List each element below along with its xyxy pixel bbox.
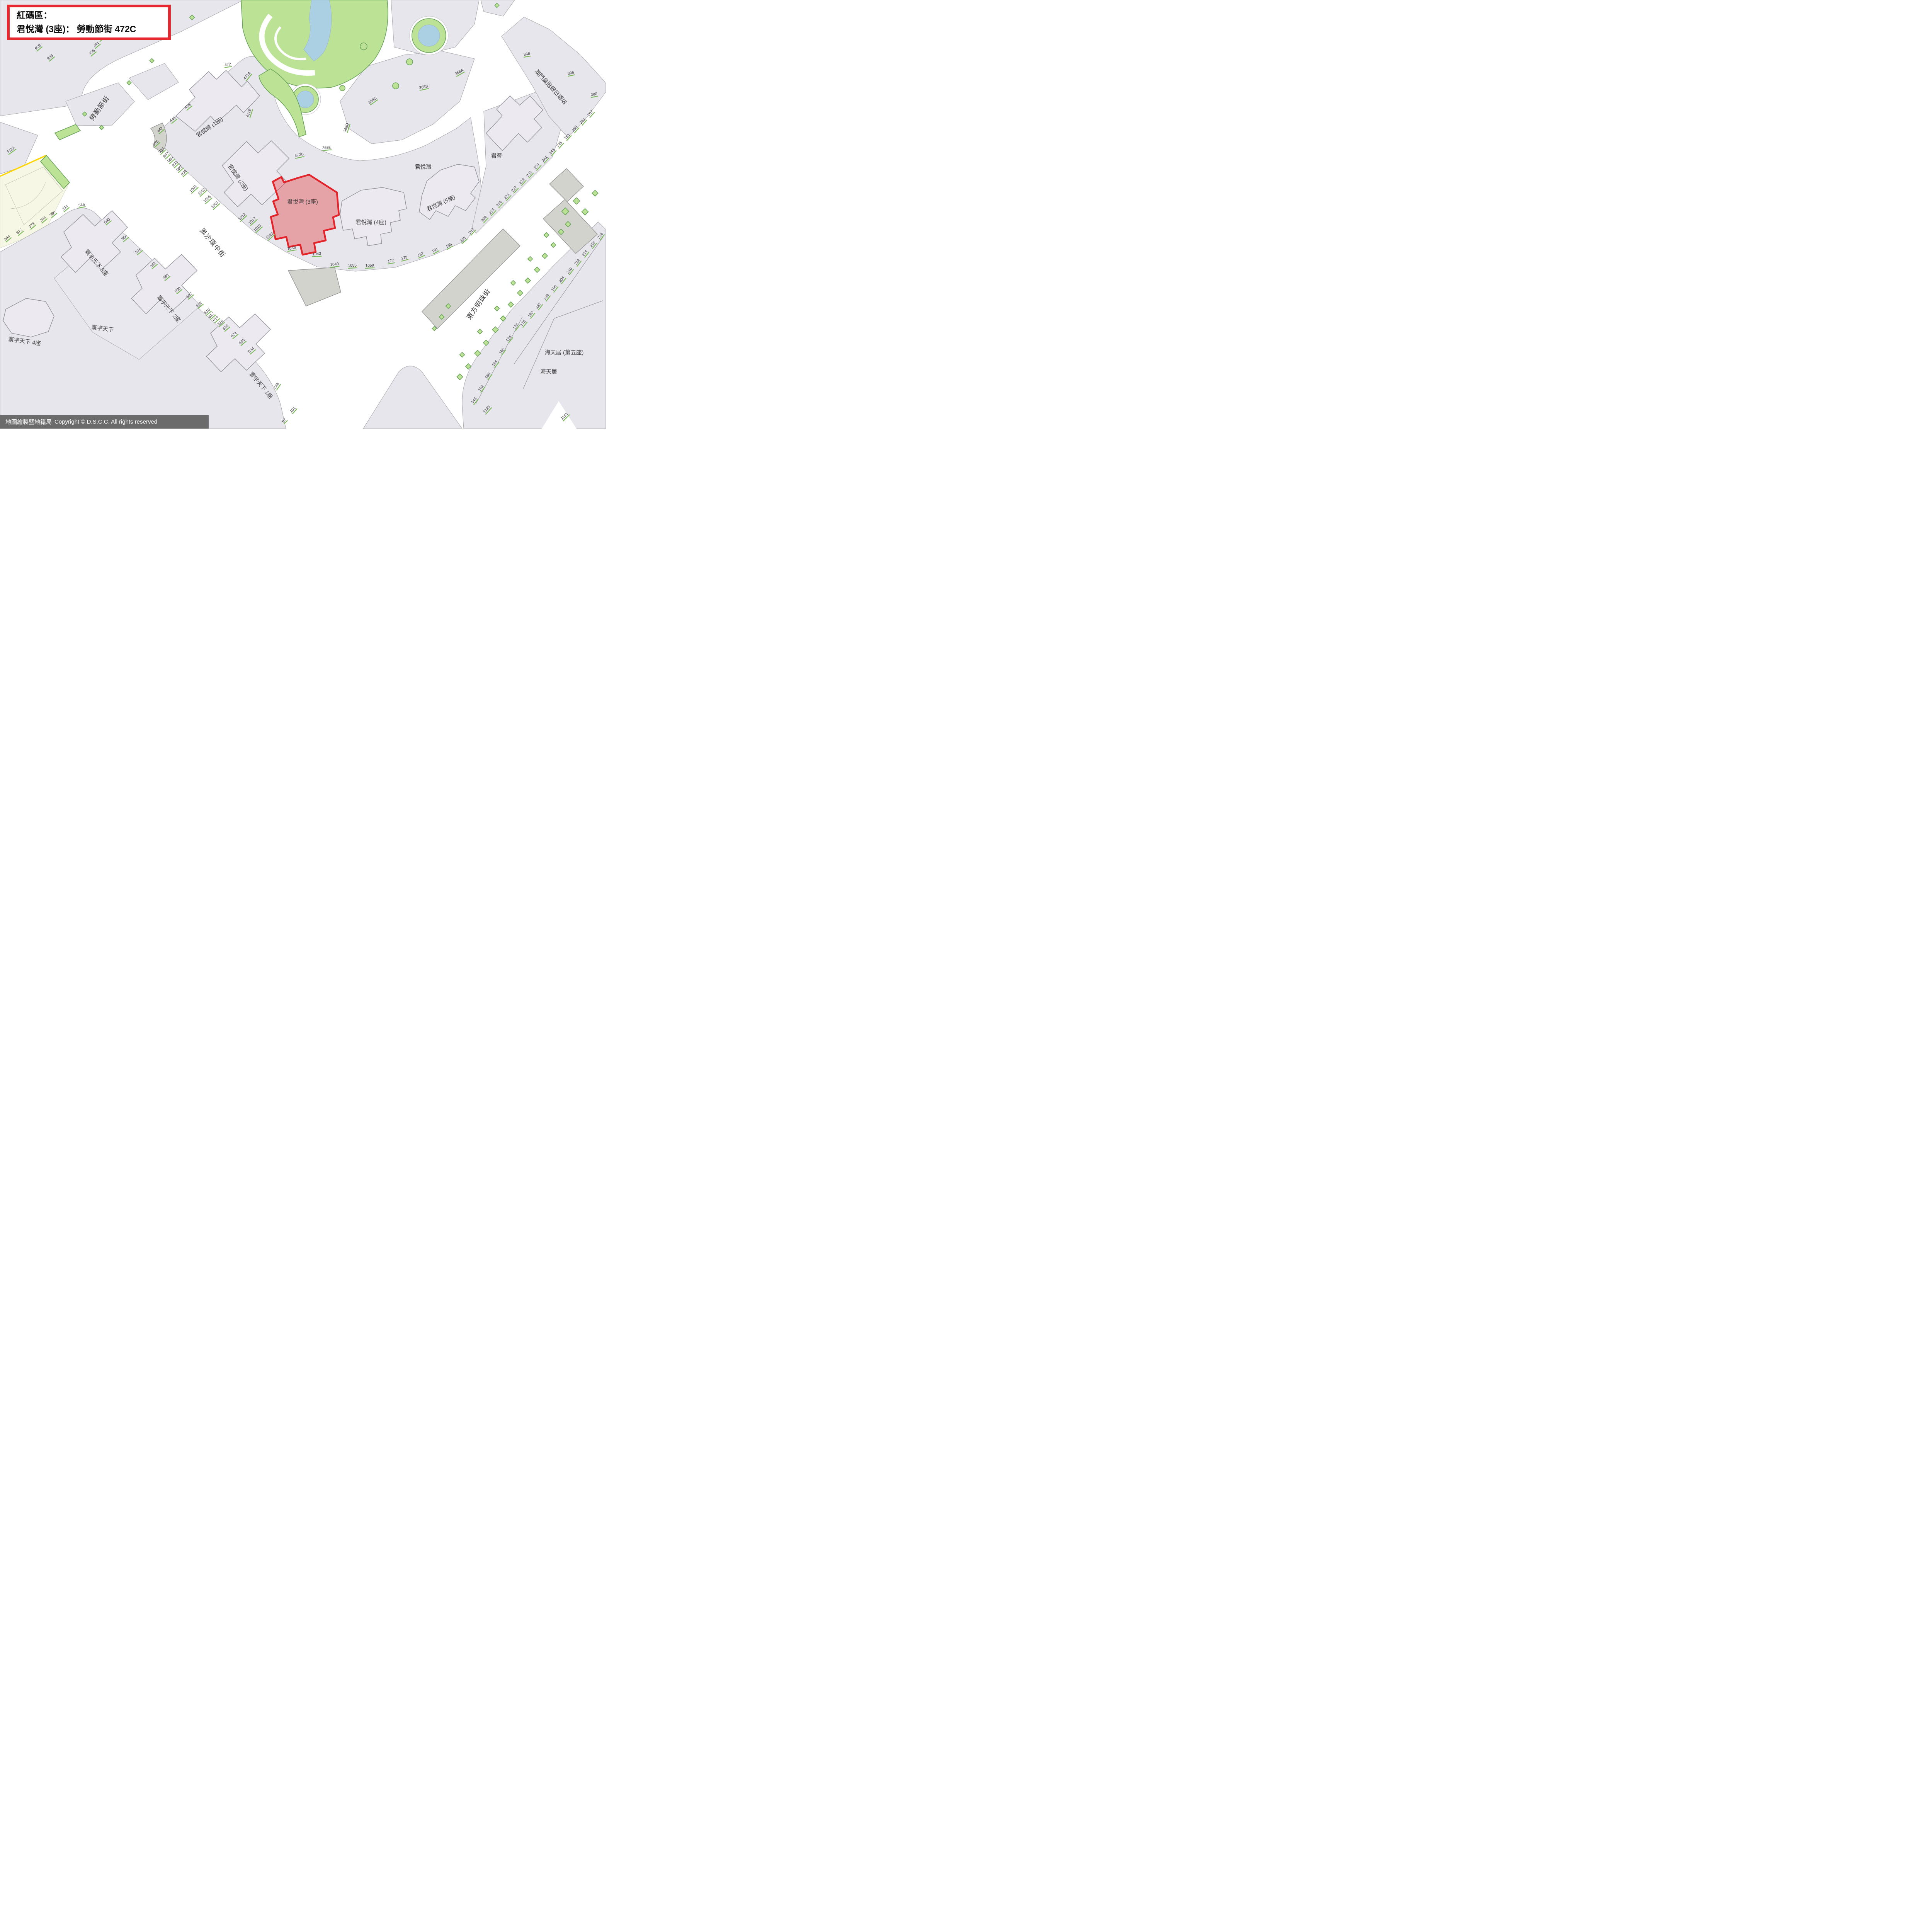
tree-icon <box>460 352 465 358</box>
house-number: 1043 <box>312 252 321 257</box>
tree-icon <box>99 125 104 129</box>
tree-icon <box>495 306 500 311</box>
tree-icon <box>525 278 531 283</box>
map-canvas: 929933435441445512A442446458472472A472B4… <box>0 0 606 429</box>
building-name-label: 君悅灣 (4座) <box>355 219 386 226</box>
tree-icon <box>127 80 131 85</box>
house-number: 1001 <box>189 184 199 194</box>
tree-icon <box>360 43 367 50</box>
house-number: 177 <box>387 258 395 264</box>
house-number: 368D <box>343 123 350 133</box>
tree-icon <box>393 83 399 89</box>
svg-text:君薈: 君薈 <box>491 153 502 159</box>
house-number-underline <box>348 268 357 268</box>
tree-icon <box>517 290 523 296</box>
svg-text:海天居: 海天居 <box>540 369 557 375</box>
house-number-underline <box>365 268 374 268</box>
info-box-address: 君悅灣 (3座)： 勞動節街 472C <box>17 22 168 36</box>
map-viewport: 929933435441445512A442446458472472A472B4… <box>0 0 606 429</box>
pond-east <box>410 16 448 55</box>
svg-text:1059: 1059 <box>365 263 374 268</box>
tree-icon <box>478 329 483 334</box>
house-number: 546 <box>78 202 86 208</box>
house-number: 1007 <box>210 200 220 210</box>
house-number: 368E <box>322 145 332 151</box>
street-name-label: 黑沙環中街 <box>198 227 227 259</box>
tree-icon <box>150 58 154 63</box>
house-number: 1059 <box>365 263 374 268</box>
tree-icon <box>582 209 588 215</box>
tree-icon <box>573 198 580 204</box>
block-south-wedge <box>363 366 462 429</box>
svg-text:1055: 1055 <box>348 263 357 268</box>
tree-icon <box>511 281 516 286</box>
svg-text:黑沙環中街: 黑沙環中街 <box>198 227 227 259</box>
house-number-underline <box>312 256 321 257</box>
svg-text:君悅灣: 君悅灣 <box>415 164 432 170</box>
building-name-label: 海天居 <box>540 369 557 375</box>
copyright-text: Copyright © D.S.C.C. All rights reserved <box>54 419 157 425</box>
building-name-label: 海天居 (第五座) <box>545 349 584 356</box>
tree-icon <box>508 302 514 307</box>
tree-icon <box>406 59 413 65</box>
building-name-label: 君薈 <box>491 153 502 159</box>
info-box-title: 紅碼區： <box>17 9 168 22</box>
tree-icon <box>542 253 548 259</box>
block-topright-corner <box>481 0 515 16</box>
house-number: 101 <box>289 406 297 414</box>
green-strip-upper <box>55 124 80 140</box>
house-number: 1049 <box>330 262 339 267</box>
svg-text:君悅灣 (3座): 君悅灣 (3座) <box>287 199 318 205</box>
tree-icon <box>534 267 540 272</box>
building-slab-small <box>549 169 583 202</box>
house-number: 386 <box>567 70 575 76</box>
block-street-island-2 <box>129 63 179 100</box>
copyright-bar: 地圖繪製暨地籍局 Copyright © D.S.C.C. All rights… <box>0 415 209 429</box>
svg-text:1043: 1043 <box>312 252 321 256</box>
house-number: 472 <box>224 62 232 68</box>
svg-text:君悅灣 (4座): 君悅灣 (4座) <box>355 219 386 226</box>
tree-icon <box>528 257 533 262</box>
tree-icon <box>457 374 463 380</box>
agency-name: 地圖繪製暨地籍局 <box>5 418 52 426</box>
parking-structure <box>288 267 341 306</box>
house-number: 394 <box>61 204 70 212</box>
building-name-label: 君悅灣 (3座) <box>287 199 318 205</box>
house-number: 1055 <box>347 263 357 268</box>
tree-icon <box>544 233 549 238</box>
tree-icon <box>592 190 598 196</box>
house-number: 390 <box>590 92 598 97</box>
building-name-label: 君悅灣 <box>415 164 432 170</box>
tree-icon <box>340 85 345 91</box>
corner-wedge <box>151 123 167 152</box>
tree-icon <box>551 243 556 248</box>
house-number: 1005 <box>202 194 213 204</box>
red-zone-info-box: 紅碼區： 君悅灣 (3座)： 勞動節街 472C <box>7 5 171 40</box>
house-number: 368 <box>523 51 531 57</box>
svg-text:海天居 (第五座): 海天居 (第五座) <box>545 349 584 356</box>
